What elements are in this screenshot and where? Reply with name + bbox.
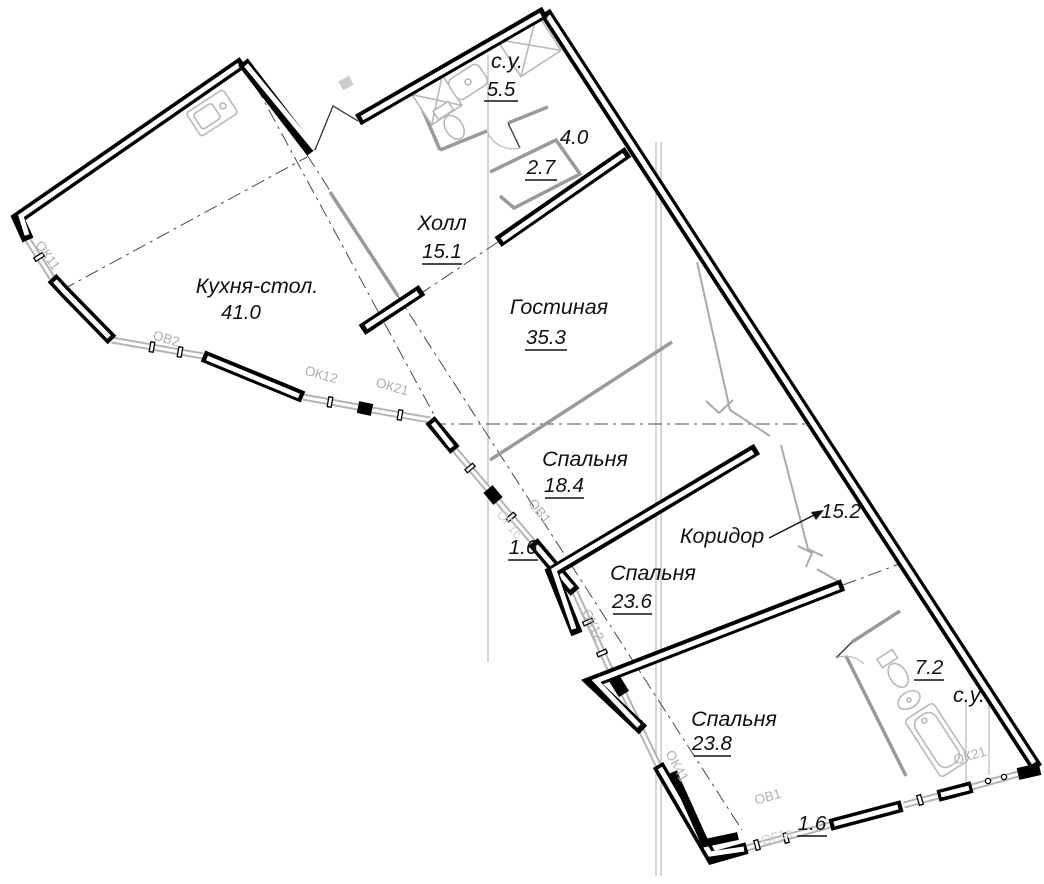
toilet-bottom [877,649,913,691]
window-label-og1s-bottom: ОГ1с [759,825,794,848]
wall-pier-2 [488,489,498,501]
window-ov1-upper [455,450,488,489]
bathtub [904,702,970,778]
partition-corridor-right-a [781,445,823,556]
floor-plan-page: с.у. 5.5 4.0 2.7 Холл 15.1 Кухня-стол. 4… [0,0,1044,884]
su-top-door-leaf [508,123,520,148]
room-label-su-bottom: с.у. [953,683,985,707]
su-top-door-arc [487,131,520,149]
room-label-bedroom-3: Спальня [691,707,777,731]
floor-plan-canvas: с.у. 5.5 4.0 2.7 Холл 15.1 Кухня-стол. 4… [0,0,1044,884]
partition-su-bottom-top [852,611,900,642]
area-label-bedroom-1: 18.4 [544,474,584,497]
area-label-niche-40: 4.0 [560,126,589,149]
room-label-kitchen: Кухня-стол. [196,274,318,298]
partition-living-bedroom1 [490,342,672,460]
room-label-hall: Холл [416,211,467,235]
washbasin-bottom [895,687,924,713]
window-bottom-mid [904,795,938,806]
window-ok12-left [303,397,358,408]
room-labels-group: с.у. 5.5 4.0 2.7 Холл 15.1 Кухня-стол. 4… [196,49,985,836]
room-label-su-top: с.у. [491,49,523,73]
wall-bottom-c [1018,769,1040,774]
toilet-top [433,101,469,143]
corridor-area-pointer [769,510,824,538]
partition-wardrobe-b [730,410,770,436]
wall-top-left [18,62,243,240]
su-bottom-door-leaf [836,642,852,658]
wall-pier-3 [614,678,624,694]
window-label-ok21-left: ОК21 [374,375,410,399]
area-label-su-bottom: 7.2 [915,656,944,679]
wall-pier-1 [358,407,372,410]
window-ok21-left [372,410,430,421]
area-label-hall: 15.1 [422,240,462,263]
partition-su-top-bottom-b [508,107,548,123]
partition-kitchen-hall [330,192,398,296]
room-label-bedroom-1: Спальня [542,447,628,471]
area-label-living: 35.3 [526,326,566,349]
window-ok21-bottom [972,774,1018,787]
area-label-bedroom-3: 23.8 [691,732,732,755]
entrance-door [315,106,358,150]
area-label-balcony-2: 1.6 [798,812,827,835]
room-label-corridor: Коридор [680,524,764,548]
axis-diagonal-kitchen [62,157,307,290]
axes-group [62,55,989,876]
wall-block-detail [338,76,353,91]
room-label-bedroom-2: Спальня [610,561,696,585]
area-label-kitchen: 41.0 [221,301,261,324]
area-label-corridor: 15.2 [821,500,861,523]
window-label-ok12-left: ОК12 [303,363,339,387]
area-label-su-top: 5.5 [487,78,516,101]
area-label-bedroom-2: 23.6 [611,590,652,613]
window-label-ov1-bottom: ОВ1 [753,786,783,808]
room-label-living: Гостиная [510,295,609,319]
area-label-closet-27: 2.7 [526,156,557,179]
